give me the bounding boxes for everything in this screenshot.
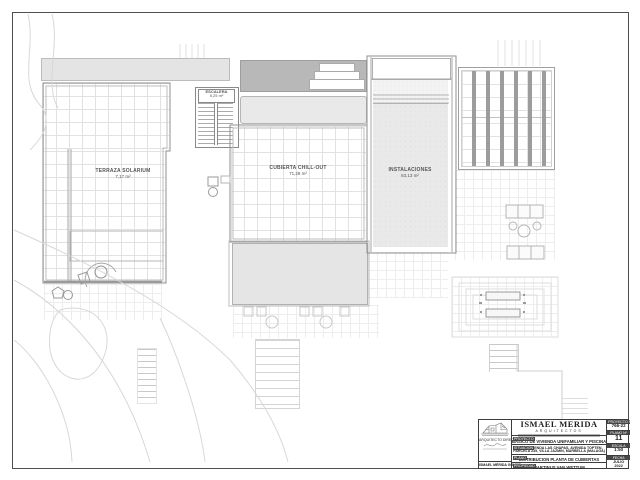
signature-icon [481, 442, 509, 451]
proyecto-no: 766-22 [607, 424, 630, 429]
firm-address-line [518, 434, 600, 435]
plan-linework [0, 0, 640, 480]
room-label-instalaciones: INSTALACIONES 83,13 m² [370, 167, 450, 178]
cell-fecha: FECHA JULIO 2022 [607, 456, 630, 468]
garden-contour-lines [14, 14, 288, 462]
row-plano: PLANO DISTRIBUCION PLANTA DE CUBIERTAS [512, 454, 606, 462]
propiedad-label: PROPIEDAD [513, 464, 536, 468]
proyecto-label: PROYECTO [513, 437, 535, 441]
drawing-sheet: ESCALERA 5,25 m² [0, 0, 640, 480]
firm-name: ISMAEL MERIDA [512, 420, 606, 429]
cell-proyecto-no: PROYECTO Nº 766-22 [607, 420, 630, 431]
architect-caption: ARQUITECTO DIRECTOR [479, 438, 511, 442]
room-label-cubierta-chillout: CUBIERTA CHILL-OUT 71,28 m² [258, 165, 338, 176]
plano-no: 11 [607, 435, 630, 443]
title-block: ARQUITECTO DIRECTOR ISMAEL MÉRIDA GÓMEZ … [478, 419, 629, 469]
plano-label: PLANO [513, 456, 527, 460]
firm-header: ISMAEL MERIDA ARQUITECTOS [512, 420, 606, 436]
room-area: 7,17 m² [83, 174, 163, 179]
room-area: 83,13 m² [370, 173, 450, 178]
house-sketch-icon [480, 421, 510, 437]
cell-escala: ESCALA 1:50 [607, 444, 630, 455]
room-area: 71,28 m² [258, 171, 338, 176]
title-block-logo-cell: ARQUITECTO DIRECTOR ISMAEL MÉRIDA GÓMEZ [479, 420, 512, 468]
title-block-main-cell: ISMAEL MERIDA ARQUITECTOS PROYECTO BASIC… [512, 420, 606, 468]
room-label-terraza-solarium: TERRAZA SOLARIUM 7,17 m² [83, 168, 163, 179]
row-propiedad: PROPIEDAD MARTINUS VAN WETTUM [512, 462, 606, 470]
cell-plano-no: PLANO Nº 11 [607, 431, 630, 444]
firm-subtitle: ARQUITECTOS [512, 429, 606, 433]
row-situacion: SITUACIÓN URB. HACIENDA LAS CHAPAS, AVEN… [512, 444, 606, 454]
title-block-side-cell: PROYECTO Nº 766-22 PLANO Nº 11 ESCALA 1:… [606, 420, 630, 468]
situacion-label: SITUACIÓN [513, 446, 534, 450]
row-proyecto: PROYECTO BASICO DE VIVIENDA UNIFAMILIAR … [512, 436, 606, 444]
fecha-year: 2022 [607, 464, 630, 468]
escala: 1:50 [607, 448, 630, 453]
architect-name: ISMAEL MÉRIDA GÓMEZ [479, 461, 511, 467]
